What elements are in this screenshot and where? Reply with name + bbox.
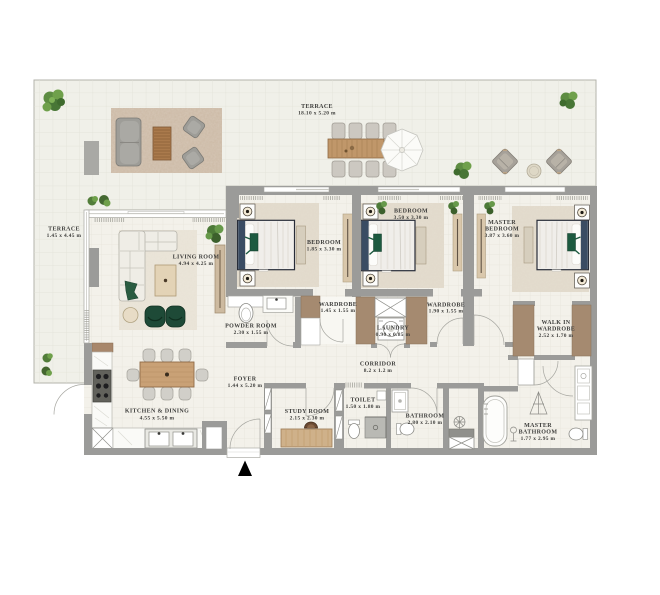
svg-text:BEDROOM: BEDROOM xyxy=(394,209,428,215)
svg-text:1.44 x 5.20 m: 1.44 x 5.20 m xyxy=(228,383,263,389)
svg-text:1.45 x 1.55 m: 1.45 x 1.55 m xyxy=(321,308,356,314)
svg-text:BEDROOM: BEDROOM xyxy=(485,227,519,233)
svg-text:LIVING ROOM: LIVING ROOM xyxy=(173,255,220,261)
svg-text:MASTER: MASTER xyxy=(488,220,516,226)
svg-text:2.15 x 2.30 m: 2.15 x 2.30 m xyxy=(290,416,325,422)
svg-text:TERRACE: TERRACE xyxy=(301,104,333,110)
svg-text:TERRACE: TERRACE xyxy=(48,227,80,233)
svg-text:4.94 x 4.25 m: 4.94 x 4.25 m xyxy=(179,261,214,267)
svg-text:3.50 x 3.30 m: 3.50 x 3.30 m xyxy=(394,215,429,221)
svg-text:TOILET: TOILET xyxy=(350,398,375,404)
svg-text:BATHROOM: BATHROOM xyxy=(406,414,445,420)
svg-text:LAUNDRY: LAUNDRY xyxy=(377,326,410,332)
svg-text:BEDROOM: BEDROOM xyxy=(307,240,341,246)
svg-text:BATHROOM: BATHROOM xyxy=(519,430,558,436)
svg-text:POWDER ROOM: POWDER ROOM xyxy=(225,324,277,330)
svg-text:2.80 x 2.10 m: 2.80 x 2.10 m xyxy=(408,420,443,426)
svg-text:WALK IN: WALK IN xyxy=(542,320,571,326)
svg-text:STUDY ROOM: STUDY ROOM xyxy=(285,409,329,415)
svg-text:CORRIDOR: CORRIDOR xyxy=(360,362,396,368)
svg-text:1.45 x 4.45 m: 1.45 x 4.45 m xyxy=(47,233,82,239)
svg-text:1.77 x 2.95 m: 1.77 x 2.95 m xyxy=(521,436,556,442)
svg-text:0.90 x 0.85 m: 0.90 x 0.85 m xyxy=(376,332,411,338)
svg-text:WARDROBE: WARDROBE xyxy=(537,327,575,333)
svg-text:8.2 x 1.2 m: 8.2 x 1.2 m xyxy=(364,368,393,374)
svg-text:FOYER: FOYER xyxy=(234,377,257,383)
svg-text:1.90 x 1.55 m: 1.90 x 1.55 m xyxy=(429,309,464,315)
svg-text:3.87 x 3.60 m: 3.87 x 3.60 m xyxy=(485,233,520,239)
svg-text:2.30 x 1.55 m: 2.30 x 1.55 m xyxy=(234,330,269,336)
svg-text:1.85 x 3.30 m: 1.85 x 3.30 m xyxy=(307,247,342,253)
svg-text:KITCHEN & DINING: KITCHEN & DINING xyxy=(125,409,189,415)
svg-text:1.50 x 1.80 m: 1.50 x 1.80 m xyxy=(346,404,381,410)
svg-text:2.52 x 1.70 m: 2.52 x 1.70 m xyxy=(539,333,574,339)
svg-text:MASTER: MASTER xyxy=(524,423,552,429)
svg-text:18.10 x 5.20 m: 18.10 x 5.20 m xyxy=(298,111,336,117)
svg-text:4.55 x 5.50 m: 4.55 x 5.50 m xyxy=(140,416,175,422)
